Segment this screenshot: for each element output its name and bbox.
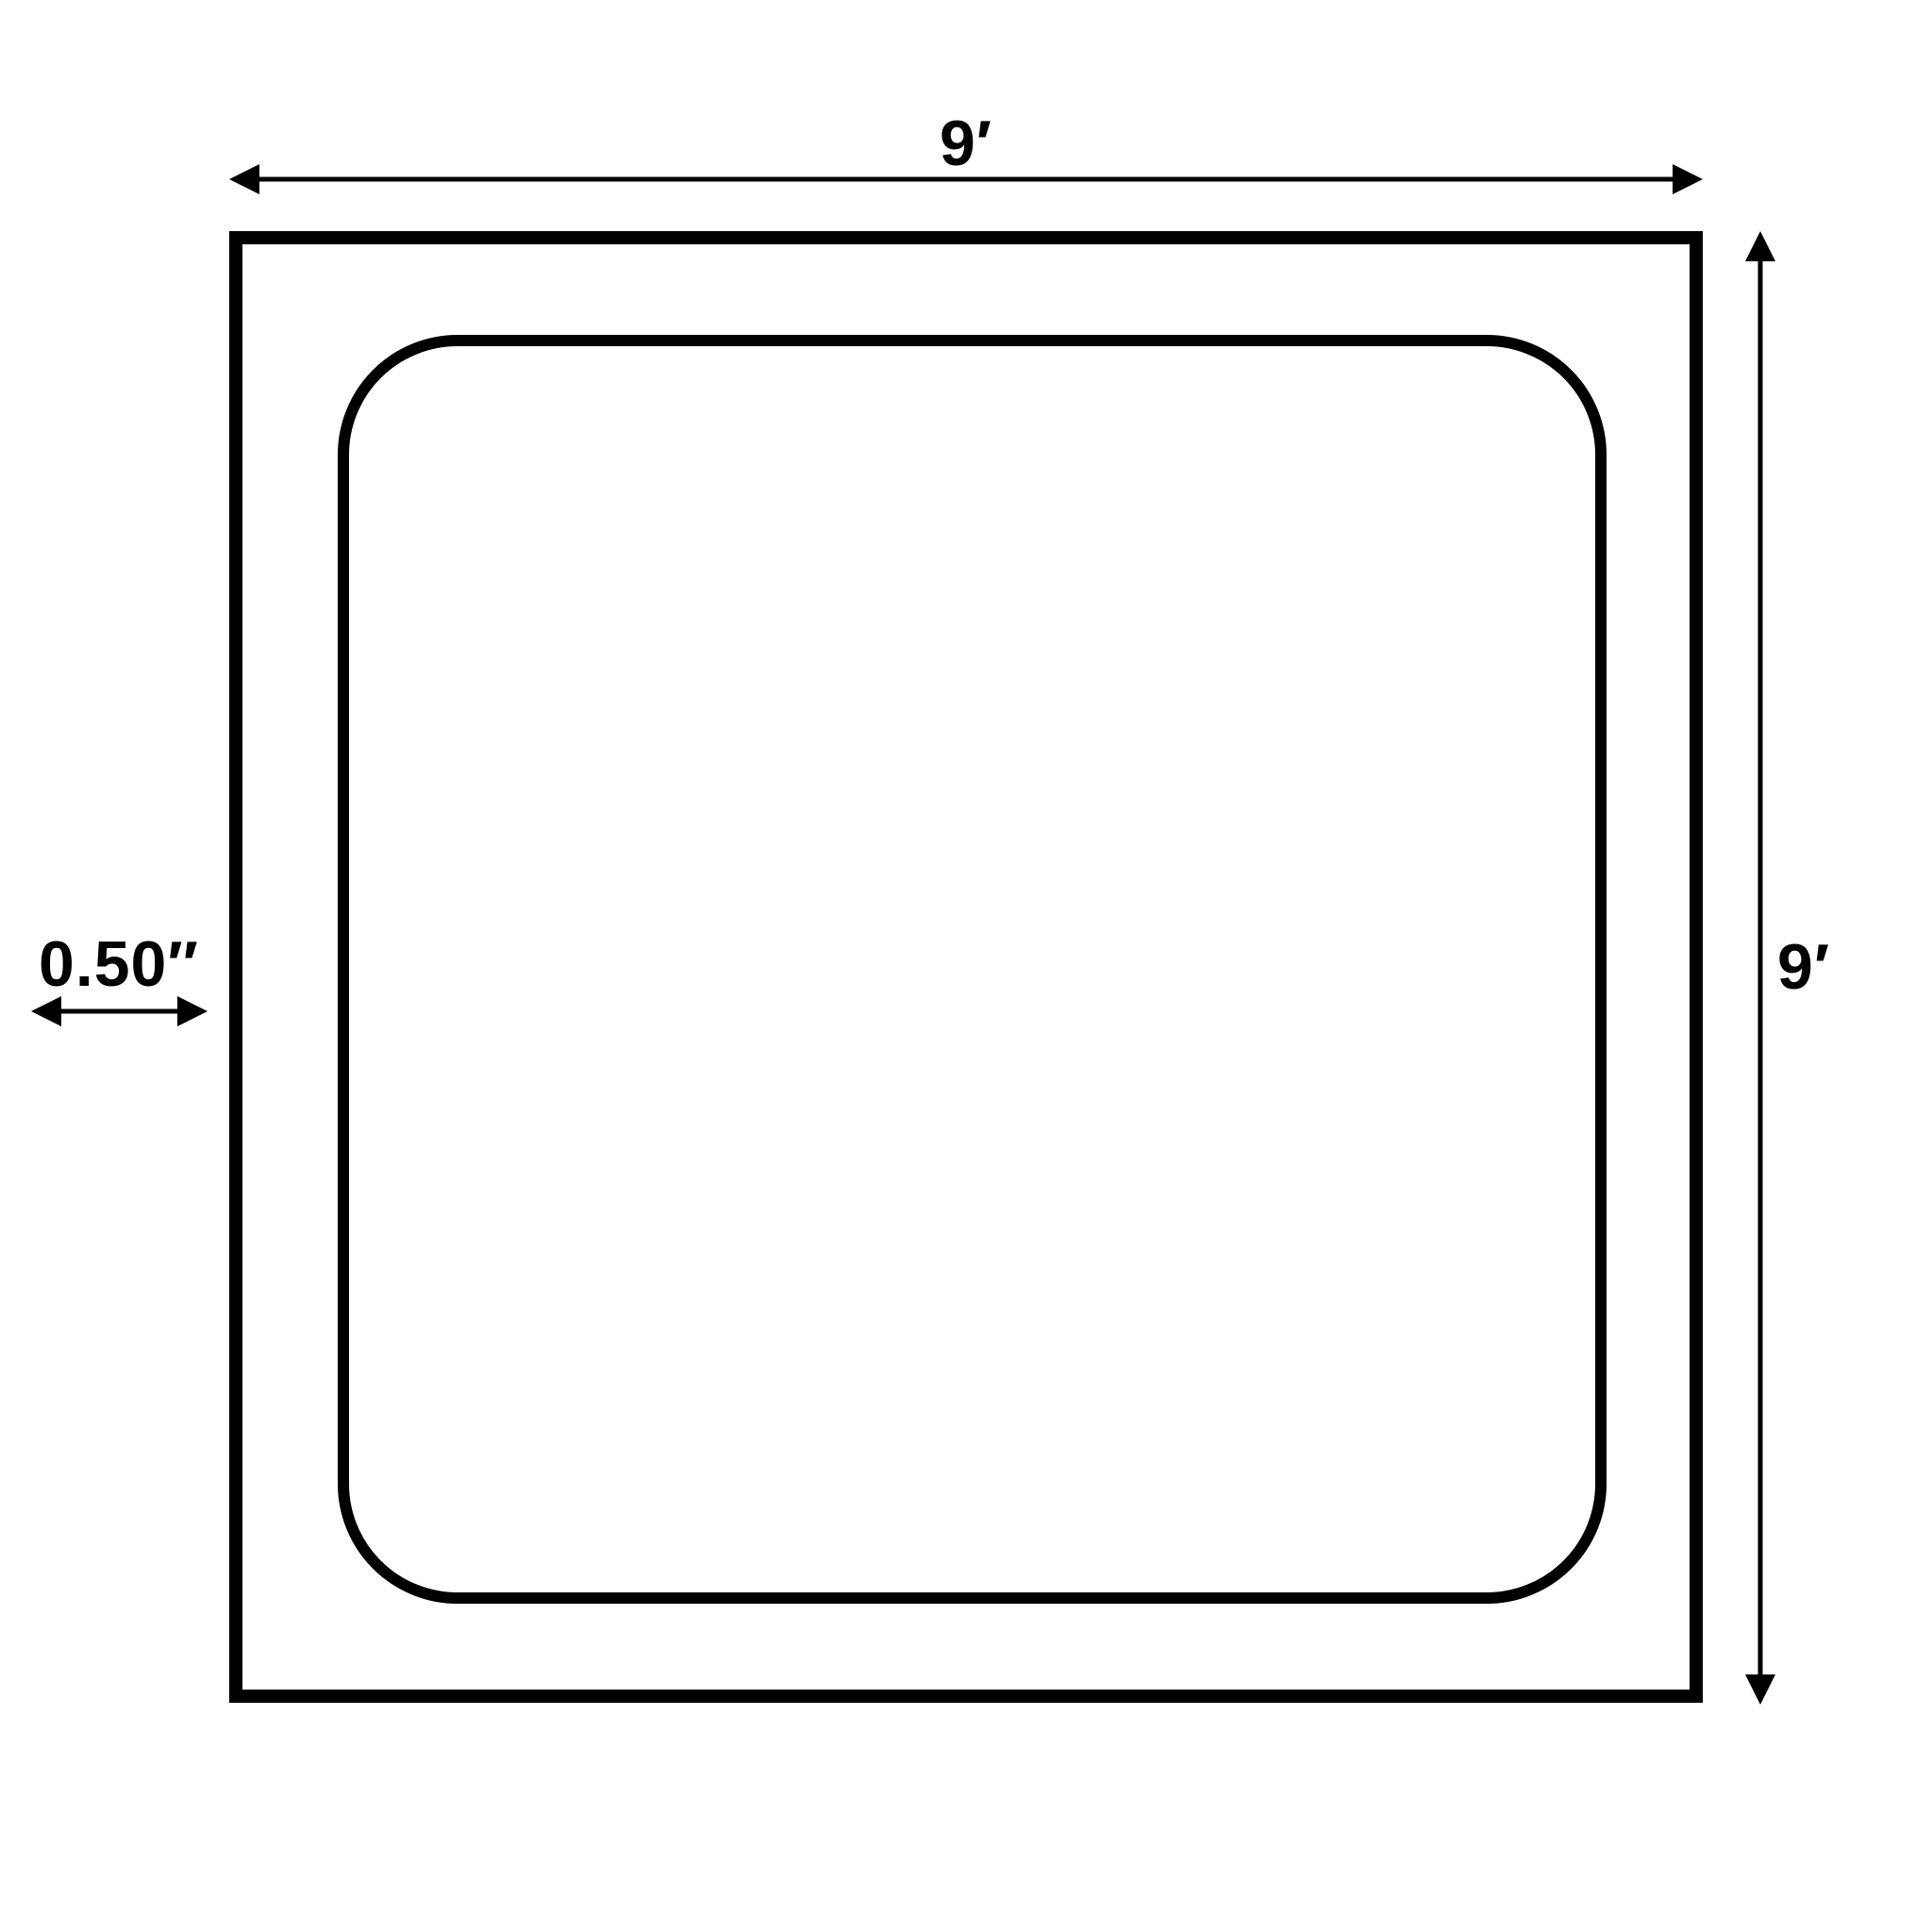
- right-dimension-top-arrowhead-icon: [1745, 231, 1775, 261]
- left-thickness-dimension-label: 0.50″: [39, 928, 199, 1000]
- right-height-dimension: 9′: [1745, 231, 1830, 1705]
- left-dimension-right-arrowhead-icon: [177, 996, 208, 1026]
- top-dimension-right-arrowhead-icon: [1673, 164, 1703, 194]
- top-width-dimension: 9′: [229, 108, 1703, 194]
- right-dimension-bottom-arrowhead-icon: [1745, 1674, 1775, 1705]
- right-height-dimension-label: 9′: [1777, 931, 1830, 1003]
- outer-square-frame: [236, 238, 1696, 1696]
- left-dimension-left-arrowhead-icon: [31, 996, 61, 1026]
- inner-scalloped-panel-outline: [343, 341, 1601, 1598]
- panel-dimension-diagram: 9′ 9′ 0.50″: [0, 0, 1932, 1932]
- diagram-canvas: 9′ 9′ 0.50″: [0, 0, 1932, 1932]
- left-thickness-dimension: 0.50″: [31, 928, 208, 1026]
- top-dimension-left-arrowhead-icon: [229, 164, 259, 194]
- top-width-dimension-label: 9′: [940, 108, 992, 179]
